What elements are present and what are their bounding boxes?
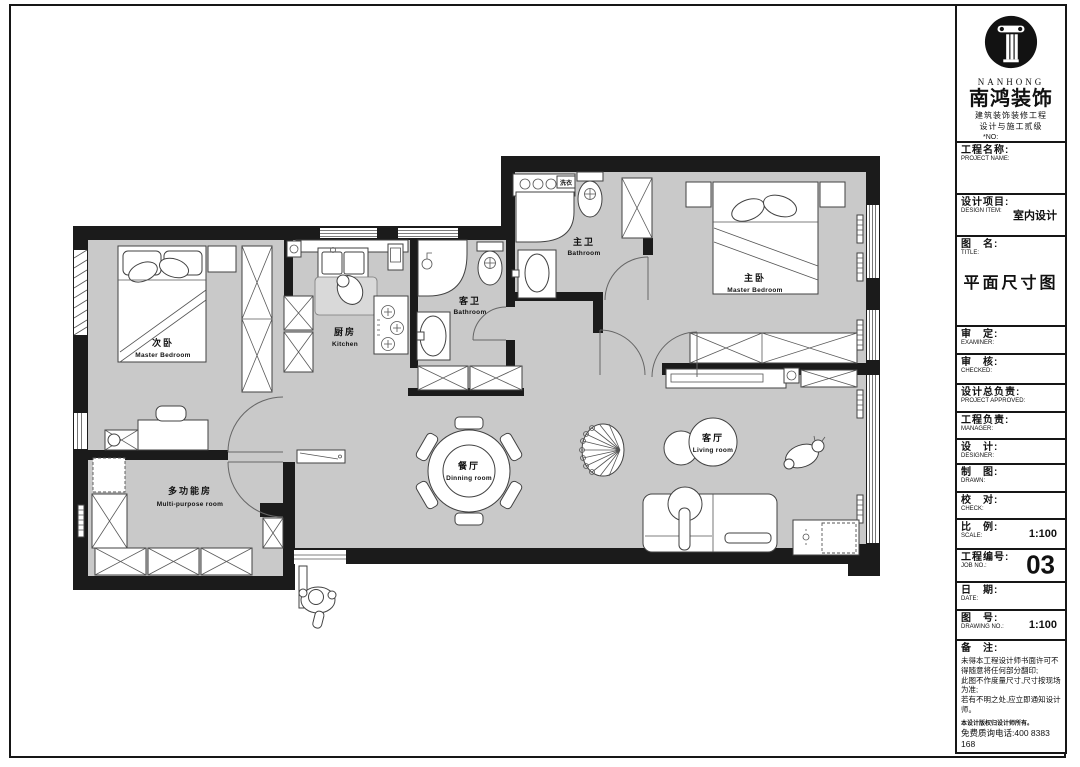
company-logo: NANHONG 南鸿装饰 建筑装饰装修工程 设计与施工贰级 *NO: (957, 6, 1065, 141)
field-designer: 设 计: DESIGNER: (957, 438, 1065, 463)
room-label-cn: 厨房 (334, 326, 356, 337)
cabinet (105, 430, 138, 450)
window-left-hatched (74, 250, 87, 335)
drawing-sheet: 次卧 Master Bedroom 多功能房 Multi-purpose roo… (0, 0, 1080, 767)
remark-line: 此图不作度量尺寸,尺寸按现场为准; (961, 676, 1061, 696)
room-label-en: Bathroom (567, 250, 600, 257)
room-label-cn: 次卧 (152, 337, 174, 348)
field-date: 日 期: DATE: (957, 581, 1065, 609)
curtain-icon (857, 495, 863, 523)
floor-plan: 次卧 Master Bedroom 多功能房 Multi-purpose roo… (0, 0, 1080, 767)
drawing-number: 1:100 (1029, 619, 1057, 631)
field-design-item: 设计项目: DESIGN ITEM: 室内设计 (957, 193, 1065, 235)
room-label-en: Dinning room (446, 475, 492, 482)
tall-cabinet (92, 494, 127, 548)
window-top-1 (320, 228, 377, 238)
remark-line: 未得本工程设计师书面许可不得随意将任何部分翻印; (961, 656, 1061, 676)
stove (374, 296, 408, 354)
side-cabinet (801, 370, 857, 387)
curtain-icon (857, 390, 863, 418)
field-project-approved: 设计总负责: PROJECT APPROVED: (957, 383, 1065, 411)
side-table (793, 520, 859, 555)
curtain-icon (857, 253, 863, 281)
shower-cabinet (622, 178, 652, 238)
room-label-cn: 多功能房 (168, 485, 212, 496)
shower (516, 192, 574, 242)
field-job-no: 工程编号: JOB NO.: 03 (957, 548, 1065, 581)
nightstand (820, 182, 845, 207)
scale-value: 1:100 (1029, 528, 1057, 540)
entry-opening (294, 550, 346, 564)
room-label-cn: 客厅 (701, 432, 724, 443)
room-label-en: Living room (693, 447, 734, 454)
curtain-icon (857, 215, 863, 243)
wardrobe (690, 333, 857, 363)
window-right-2 (867, 310, 879, 362)
wardrobe (242, 246, 272, 392)
person-figure-entry (299, 587, 336, 629)
curtain-icon (857, 320, 863, 350)
room-label-en: Multi-purpose room (157, 501, 223, 508)
title-block: NANHONG 南鸿装饰 建筑装饰装修工程 设计与施工贰级 *NO: 工程名称:… (955, 4, 1067, 754)
service-phone: 免费质询电话:400 8383 168 (961, 727, 1061, 749)
room-label-cn: 客卫 (458, 295, 481, 306)
room-label-en: Master Bedroom (727, 287, 783, 294)
curtain-icon (78, 505, 84, 537)
sideboard (297, 450, 345, 463)
job-number: 03 (1026, 550, 1055, 581)
bedside-table (208, 246, 236, 272)
washbasin (512, 250, 556, 298)
field-checked: 审 核: CHECKED: (957, 353, 1065, 383)
field-remarks: 备 注: 未得本工程设计师书面许可不得随意将任何部分翻印; 此图不作度量尺寸,尺… (957, 639, 1065, 754)
room-label-cn: 主卧 (744, 272, 766, 283)
cabinet-dashed (93, 458, 125, 492)
room-label-cn: 主卫 (573, 236, 595, 247)
column-logo-icon (983, 14, 1039, 70)
field-examiner: 审 定: EXAMINER: (957, 325, 1065, 353)
dining-table (428, 430, 510, 512)
copyright-note: 本设计版权归设计师所有。 (961, 718, 1061, 727)
window-right-3 (867, 375, 879, 543)
storage-cabinets (95, 548, 252, 575)
appliance (388, 244, 403, 270)
toilet (577, 172, 603, 217)
field-scale: 比 例: SCALE: 1:100 (957, 518, 1065, 548)
field-drawing-title: 图 名: TITLE: 平面尺寸图 (957, 235, 1065, 325)
plant-decor (580, 424, 625, 476)
window-top-2 (398, 228, 458, 238)
counter-box (287, 241, 301, 257)
room-label-cn: 餐厅 (457, 460, 480, 471)
drawing-title: 平面尺寸图 (961, 269, 1061, 293)
field-check: 校 对: CHECK: (957, 491, 1065, 518)
no-label: *NO: (957, 134, 1065, 141)
washbasin (417, 312, 450, 360)
nightstand (686, 182, 711, 207)
small-cabinet (263, 518, 283, 548)
window-right-1 (867, 205, 879, 278)
room-label-en: Master Bedroom (135, 352, 191, 359)
room-label-en: Kitchen (332, 341, 358, 348)
window-left-2 (74, 413, 87, 449)
cert-line-2: 设计与施工贰级 (980, 122, 1043, 131)
remark-line: 若有不明之处,应立即通知设计师。 (961, 695, 1061, 715)
room-label-en: Bathroom (453, 309, 486, 316)
field-drawn: 制 图: DRAWN: (957, 463, 1065, 491)
field-manager: 工程负责: MANAGER: (957, 411, 1065, 438)
wall-cabinets (284, 296, 313, 372)
cert-line-1: 建筑装饰装修工程 (975, 111, 1047, 120)
brand-name-cn: 南鸿装饰 (957, 87, 1065, 109)
toilet (477, 242, 503, 285)
hall-cabinets (418, 366, 522, 390)
field-project-name: 工程名称: PROJECT NAME: (957, 141, 1065, 193)
tv-console (666, 368, 799, 388)
laundry-label: 洗衣 (557, 176, 575, 188)
svg-text:洗衣: 洗衣 (560, 179, 572, 187)
sofa (643, 487, 777, 552)
field-drawing-no: 图 号: DRAWING NO.: 1:100 (957, 609, 1065, 639)
